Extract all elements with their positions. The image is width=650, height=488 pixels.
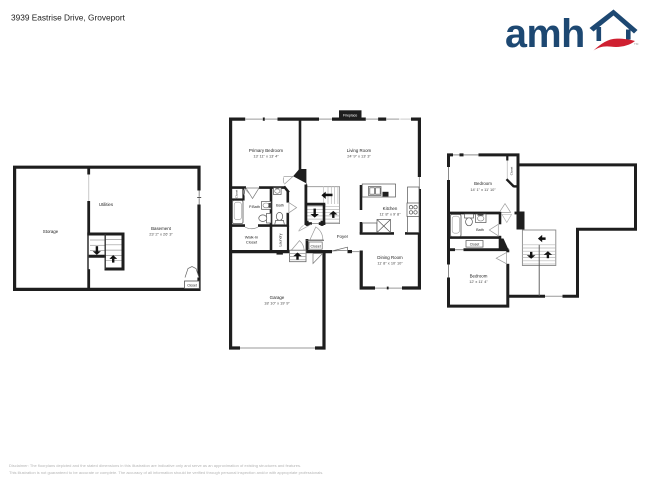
svg-text:TM: TM (634, 42, 639, 46)
svg-text:Closet: Closet (246, 240, 258, 245)
svg-text:Bath: Bath (276, 203, 284, 207)
svg-text:11' 8" x 9' 8": 11' 8" x 9' 8" (379, 211, 401, 216)
svg-text:11' 8" x 10' 10": 11' 8" x 10' 10" (377, 261, 403, 266)
svg-text:3939 Eastrise Drive, Groveport: 3939 Eastrise Drive, Groveport (11, 13, 126, 23)
svg-text:14' 1" x 11' 10": 14' 1" x 11' 10" (470, 187, 496, 192)
svg-text:This illustration is not guara: This illustration is not guaranteed to b… (9, 470, 323, 475)
svg-text:Bedroom: Bedroom (474, 181, 492, 186)
svg-text:Closet: Closet (509, 167, 513, 176)
svg-text:Closet: Closet (235, 190, 239, 199)
svg-text:Basement: Basement (151, 226, 172, 231)
svg-text:Dining Room: Dining Room (377, 255, 403, 260)
svg-text:Primary Bedroom: Primary Bedroom (249, 148, 284, 153)
svg-text:Foyer: Foyer (337, 234, 349, 239)
svg-text:Laundry: Laundry (279, 233, 283, 246)
svg-text:Bedroom: Bedroom (470, 273, 488, 278)
svg-text:P.Bath: P.Bath (249, 205, 260, 209)
svg-text:Garage: Garage (270, 295, 285, 300)
svg-text:Storage: Storage (43, 229, 59, 234)
svg-text:Disclaimer: The floorplans dep: Disclaimer: The floorplans depicted and … (9, 463, 301, 468)
svg-text:18' 10" x 19' 9": 18' 10" x 19' 9" (264, 301, 290, 306)
svg-text:12' x 11' 4": 12' x 11' 4" (469, 279, 488, 284)
svg-text:Utilities: Utilities (99, 202, 114, 207)
svg-text:24' 9" x 13' 3": 24' 9" x 13' 3" (347, 154, 371, 159)
svg-text:23' 2" x 26' 3": 23' 2" x 26' 3" (149, 231, 173, 236)
svg-text:Fireplace: Fireplace (343, 114, 357, 118)
svg-text:13' 11" x 13' 4": 13' 11" x 13' 4" (253, 154, 279, 159)
svg-text:Closet: Closet (470, 243, 480, 247)
svg-text:Bath: Bath (476, 228, 484, 232)
svg-text:Kitchen: Kitchen (383, 206, 398, 211)
svg-text:amh: amh (505, 12, 585, 56)
svg-text:Closet: Closet (311, 245, 321, 249)
svg-text:Living Room: Living Room (347, 148, 372, 153)
svg-text:Closet: Closet (187, 284, 197, 288)
